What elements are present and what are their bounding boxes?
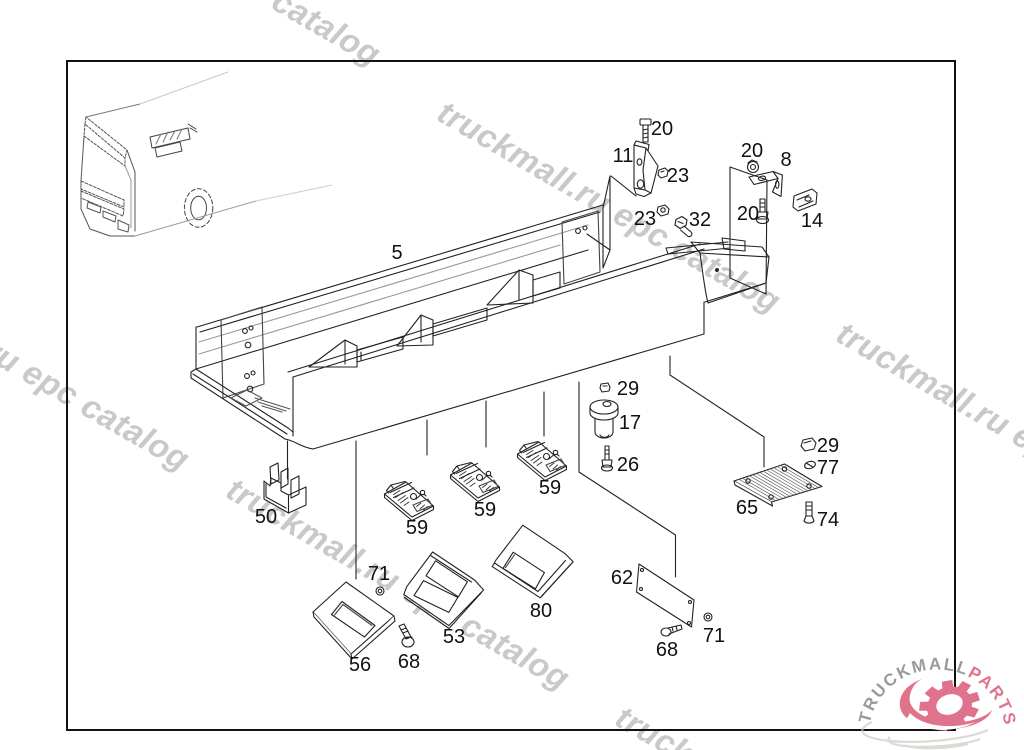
svg-text:26: 26 xyxy=(617,454,639,476)
svg-text:20: 20 xyxy=(741,140,763,162)
svg-text:20: 20 xyxy=(737,203,759,225)
svg-text:65: 65 xyxy=(736,497,758,519)
svg-text:11: 11 xyxy=(613,145,634,167)
svg-text:53: 53 xyxy=(443,626,465,648)
svg-text:62: 62 xyxy=(611,567,633,589)
svg-text:59: 59 xyxy=(474,499,496,521)
svg-text:77: 77 xyxy=(817,457,839,479)
svg-text:29: 29 xyxy=(617,378,639,400)
svg-text:68: 68 xyxy=(398,651,420,673)
svg-text:68: 68 xyxy=(656,639,678,661)
svg-text:5: 5 xyxy=(391,242,402,264)
svg-text:14: 14 xyxy=(801,210,823,232)
svg-text:59: 59 xyxy=(406,517,428,539)
svg-text:56: 56 xyxy=(349,654,371,676)
svg-text:23: 23 xyxy=(634,208,656,230)
svg-text:71: 71 xyxy=(703,625,725,647)
svg-text:23: 23 xyxy=(667,165,689,187)
svg-text:8: 8 xyxy=(780,149,791,171)
svg-text:74: 74 xyxy=(817,509,839,531)
svg-text:50: 50 xyxy=(255,506,277,528)
svg-text:17: 17 xyxy=(619,412,641,434)
svg-text:20: 20 xyxy=(651,118,673,140)
svg-text:29: 29 xyxy=(817,435,839,457)
svg-text:71: 71 xyxy=(368,563,390,585)
svg-text:80: 80 xyxy=(530,600,552,622)
svg-text:59: 59 xyxy=(539,477,561,499)
svg-text:32: 32 xyxy=(689,209,711,231)
